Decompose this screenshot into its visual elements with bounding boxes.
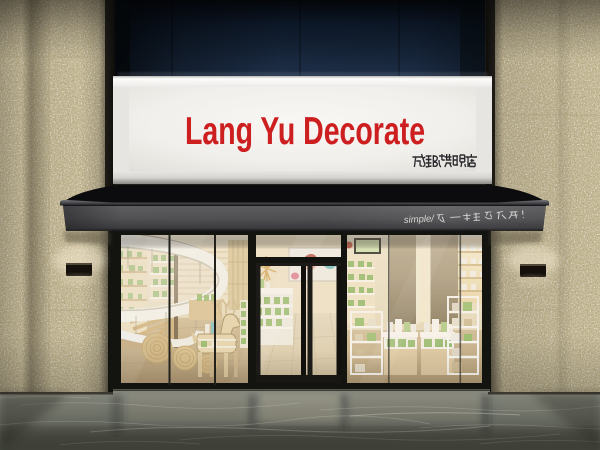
- svg-text:simple/: simple/: [404, 213, 436, 226]
- svg-text:Lang Yu Decorate: Lang Yu Decorate: [185, 110, 425, 153]
